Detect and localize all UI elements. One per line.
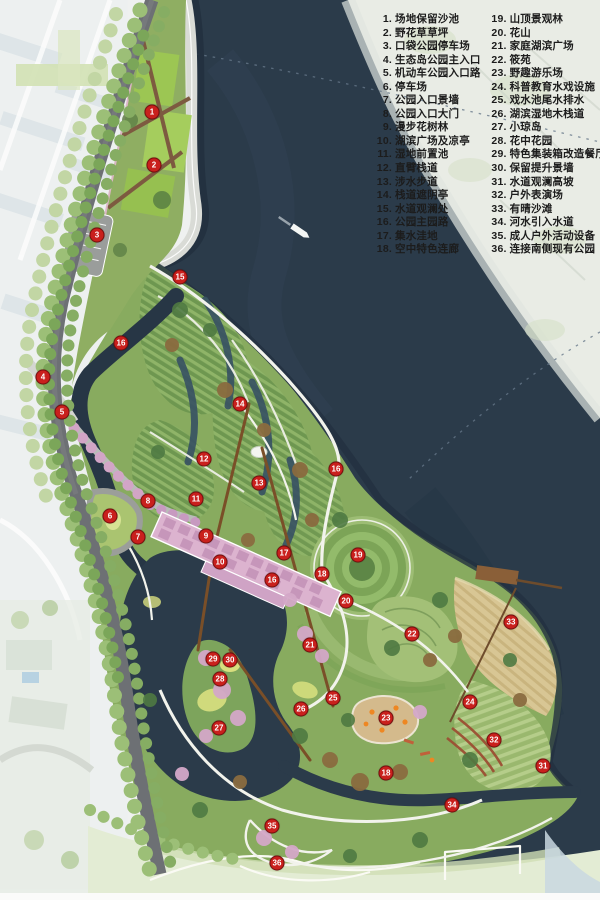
legend-item: 12.直臂栈道: [374, 162, 481, 176]
legend-item-label: 河水引入水道: [510, 216, 574, 230]
legend-item-number: 8.: [374, 108, 392, 122]
legend-item-label: 栈道遮阴亭: [395, 189, 449, 203]
legend-item: 18.空中特色连廊: [374, 243, 481, 257]
legend-item: 13.涉水步道: [374, 176, 481, 190]
legend-item-number: 30.: [489, 162, 507, 176]
legend-item: 10.湖滨广场及凉亭: [374, 135, 481, 149]
legend-item-number: 28.: [489, 135, 507, 149]
legend-item-label: 直臂栈道: [395, 162, 438, 176]
legend-item: 11.湿地前置池: [374, 148, 481, 162]
legend-item-label: 成人户外活动设备: [510, 230, 596, 244]
legend-item-label: 公园主园路: [395, 216, 449, 230]
legend-item: 20.花山: [489, 27, 600, 41]
legend-item-number: 26.: [489, 108, 507, 122]
legend-item-label: 保留提升景墙: [510, 162, 574, 176]
legend-item-number: 16.: [374, 216, 392, 230]
legend-item-number: 11.: [374, 148, 392, 162]
legend-item: 28.花中花园: [489, 135, 600, 149]
legend-item-number: 18.: [374, 243, 392, 257]
park-plan-page: 1.场地保留沙池2.野花草草坪3.口袋公园停车场4.生态岛公园主入口5.机动车公…: [0, 0, 600, 900]
legend-item-label: 涉水步道: [395, 176, 438, 190]
legend-item: 17.集水洼地: [374, 230, 481, 244]
legend-item-label: 集水洼地: [395, 230, 438, 244]
legend: 1.场地保留沙池2.野花草草坪3.口袋公园停车场4.生态岛公园主入口5.机动车公…: [374, 13, 596, 257]
legend-item-number: 23.: [489, 67, 507, 81]
legend-item: 2.野花草草坪: [374, 27, 481, 41]
legend-item-label: 口袋公园停车场: [395, 40, 470, 54]
legend-column-1: 1.场地保留沙池2.野花草草坪3.口袋公园停车场4.生态岛公园主入口5.机动车公…: [374, 13, 481, 257]
legend-item-label: 家庭湖滨广场: [510, 40, 574, 54]
legend-item: 15.水道观澜处: [374, 203, 481, 217]
legend-item: 3.口袋公园停车场: [374, 40, 481, 54]
legend-item-label: 水道观澜处: [395, 203, 449, 217]
legend-item: 8.公园入口大门: [374, 108, 481, 122]
legend-item-label: 特色集装箱改造餐厅: [510, 148, 600, 162]
legend-item-label: 水道观澜高坡: [510, 176, 574, 190]
legend-item-number: 19.: [489, 13, 507, 27]
legend-item-number: 34.: [489, 216, 507, 230]
legend-item-number: 31.: [489, 176, 507, 190]
legend-item: 22.筱苑: [489, 54, 600, 68]
legend-item-number: 36.: [489, 243, 507, 257]
legend-item-number: 35.: [489, 230, 507, 244]
legend-item-number: 5.: [374, 67, 392, 81]
legend-column-2: 19.山顶景观林20.花山21.家庭湖滨广场22.筱苑23.野趣游乐场24.科普…: [489, 13, 600, 257]
legend-item: 33.有晴沙滩: [489, 203, 600, 217]
legend-item-number: 27.: [489, 121, 507, 135]
legend-item-label: 山顶景观林: [510, 13, 564, 27]
legend-item-number: 21.: [489, 40, 507, 54]
legend-item: 16.公园主园路: [374, 216, 481, 230]
legend-item-label: 筱苑: [510, 54, 531, 68]
legend-item: 29.特色集装箱改造餐厅: [489, 148, 600, 162]
legend-item-number: 14.: [374, 189, 392, 203]
legend-item: 32.户外表演场: [489, 189, 600, 203]
legend-item-label: 野趣游乐场: [510, 67, 564, 81]
legend-item-label: 公园入口大门: [395, 108, 459, 122]
legend-item-number: 24.: [489, 81, 507, 95]
legend-item-number: 13.: [374, 176, 392, 190]
legend-item-label: 连接南侧现有公园: [510, 243, 596, 257]
legend-item-number: 7.: [374, 94, 392, 108]
legend-item-label: 野花草草坪: [395, 27, 449, 41]
legend-item-number: 4.: [374, 54, 392, 68]
legend-item-label: 湖滨广场及凉亭: [395, 135, 470, 149]
legend-item-label: 有晴沙滩: [510, 203, 553, 217]
legend-item-label: 科普教育水戏设施: [510, 81, 596, 95]
legend-item-number: 9.: [374, 121, 392, 135]
legend-item-number: 25.: [489, 94, 507, 108]
legend-item-label: 湿地前置池: [395, 148, 449, 162]
legend-item: 27.小琼岛: [489, 121, 600, 135]
legend-item: 1.场地保留沙池: [374, 13, 481, 27]
legend-item-label: 漫步花树林: [395, 121, 449, 135]
legend-item-number: 10.: [374, 135, 392, 149]
legend-item: 6.停车场: [374, 81, 481, 95]
legend-item-label: 戏水池尾水排水: [510, 94, 585, 108]
legend-item: 25.戏水池尾水排水: [489, 94, 600, 108]
legend-item-number: 3.: [374, 40, 392, 54]
legend-item-number: 15.: [374, 203, 392, 217]
legend-item: 14.栈道遮阴亭: [374, 189, 481, 203]
legend-item-number: 33.: [489, 203, 507, 217]
legend-item: 9.漫步花树林: [374, 121, 481, 135]
legend-item-label: 湖滨湿地木栈道: [510, 108, 585, 122]
legend-item-label: 小琼岛: [510, 121, 542, 135]
legend-item-label: 公园入口景墙: [395, 94, 459, 108]
legend-item-label: 停车场: [395, 81, 427, 95]
legend-item: 26.湖滨湿地木栈道: [489, 108, 600, 122]
legend-item-label: 户外表演场: [510, 189, 564, 203]
legend-item-number: 22.: [489, 54, 507, 68]
legend-item-number: 1.: [374, 13, 392, 27]
legend-item-label: 花中花园: [510, 135, 553, 149]
legend-item-number: 2.: [374, 27, 392, 41]
legend-item-label: 机动车公园入口路: [395, 67, 481, 81]
legend-item-label: 空中特色连廊: [395, 243, 459, 257]
legend-item-number: 20.: [489, 27, 507, 41]
legend-item: 30.保留提升景墙: [489, 162, 600, 176]
legend-item-number: 17.: [374, 230, 392, 244]
legend-item-number: 32.: [489, 189, 507, 203]
legend-item: 4.生态岛公园主入口: [374, 54, 481, 68]
legend-item: 36.连接南侧现有公园: [489, 243, 600, 257]
legend-item: 34.河水引入水道: [489, 216, 600, 230]
legend-item-number: 12.: [374, 162, 392, 176]
legend-item: 19.山顶景观林: [489, 13, 600, 27]
legend-item: 24.科普教育水戏设施: [489, 81, 600, 95]
legend-item: 5.机动车公园入口路: [374, 67, 481, 81]
legend-item-number: 29.: [489, 148, 507, 162]
legend-item-number: 6.: [374, 81, 392, 95]
legend-item: 23.野趣游乐场: [489, 67, 600, 81]
legend-item-label: 生态岛公园主入口: [395, 54, 481, 68]
legend-item: 7.公园入口景墙: [374, 94, 481, 108]
legend-item-label: 场地保留沙池: [395, 13, 459, 27]
legend-item-label: 花山: [510, 27, 531, 41]
legend-item: 31.水道观澜高坡: [489, 176, 600, 190]
legend-item: 35.成人户外活动设备: [489, 230, 600, 244]
legend-item: 21.家庭湖滨广场: [489, 40, 600, 54]
